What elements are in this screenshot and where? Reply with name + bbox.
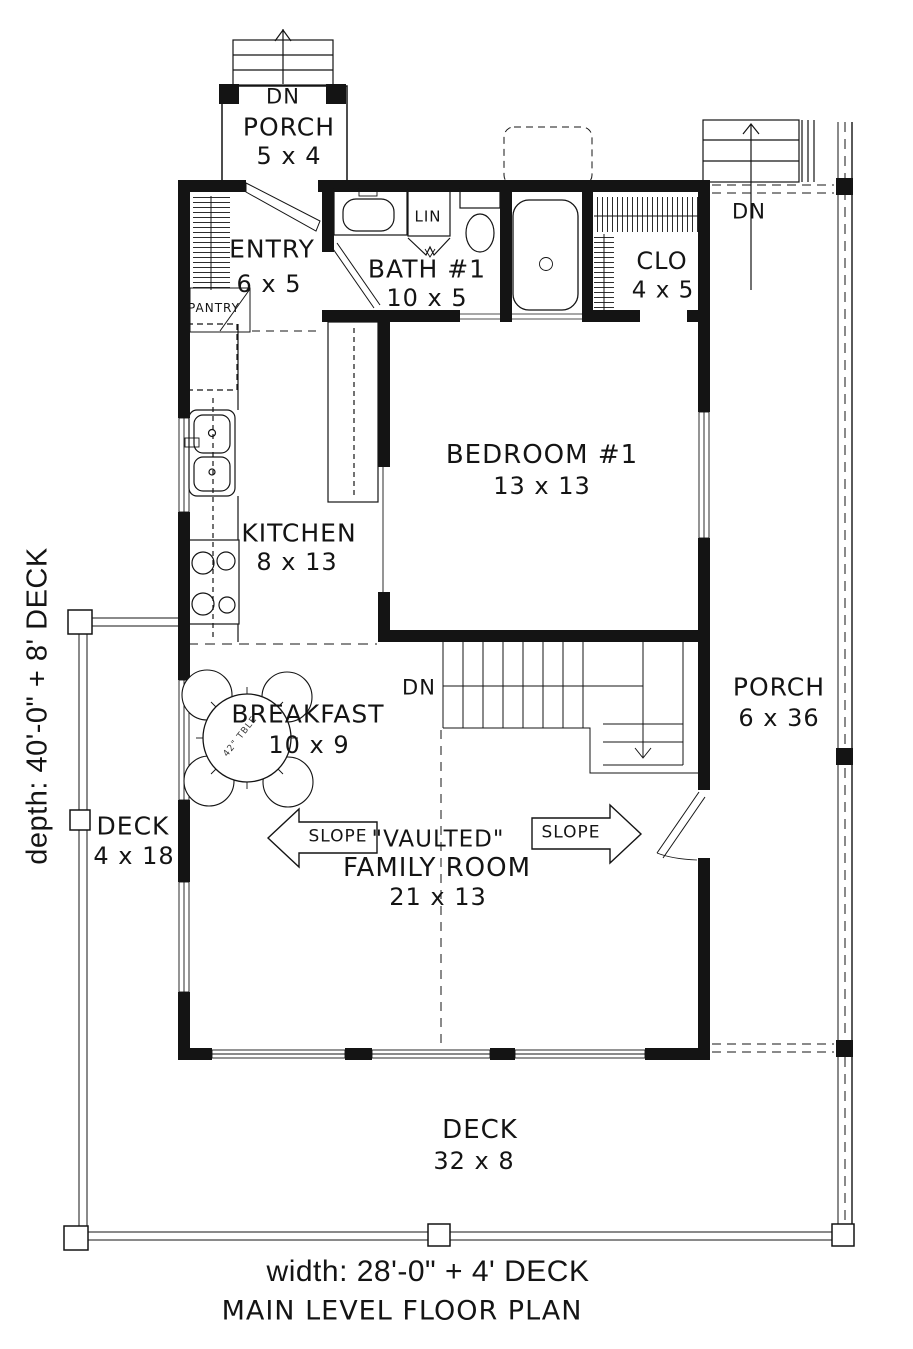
- deck-bottom-name: DECK: [442, 1117, 518, 1143]
- closet-name: CLO: [636, 249, 687, 273]
- entry-name: ENTRY: [229, 237, 315, 262]
- pantry-name: PANTRY: [188, 302, 240, 314]
- plan-title: MAIN LEVEL FLOOR PLAN: [222, 1298, 583, 1325]
- depth-dimension-note: depth: 40'-0" + 8' DECK: [24, 547, 53, 864]
- kitchen-fixtures: [185, 322, 378, 642]
- family-room-qualifier: "VAULTED": [372, 829, 505, 852]
- floor-plan-page: DN PORCH 5 x 4 ENTRY 6 x 5 PANTRY BATH #…: [0, 0, 913, 1349]
- bedroom-name: BEDROOM #1: [446, 442, 638, 468]
- porch-side-dims: 6 x 36: [738, 706, 819, 730]
- porch-side-name: PORCH: [733, 675, 825, 700]
- dn-stairs-label: DN: [402, 678, 436, 699]
- bedroom-dims: 13 x 13: [493, 474, 591, 498]
- kitchen-sink: [185, 410, 235, 496]
- dn-top-porch-label: DN: [266, 87, 300, 108]
- dn-side-porch-label: DN: [732, 202, 766, 223]
- entry-dims: 6 x 5: [237, 272, 302, 296]
- deck-side-name: DECK: [97, 814, 170, 839]
- kitchen-name: KITCHEN: [241, 521, 356, 546]
- slope-left-label: SLOPE: [308, 829, 367, 846]
- family-room-dims: 21 x 13: [389, 885, 487, 909]
- deck-bottom-dims: 32 x 8: [433, 1149, 514, 1173]
- toilet: [460, 189, 500, 252]
- front-door: [246, 183, 320, 231]
- width-dimension-note: width: 28'-0" + 4' DECK: [267, 1257, 590, 1287]
- bath-name: BATH #1: [368, 257, 486, 282]
- porch-top-dims: 5 x 4: [257, 144, 322, 168]
- closet-dims: 4 x 5: [632, 280, 695, 303]
- breakfast-dims: 10 x 9: [268, 733, 349, 757]
- slope-right-label: SLOPE: [541, 825, 600, 842]
- porch-top-stairs: [233, 29, 333, 85]
- bath-dims: 10 x 5: [386, 286, 467, 310]
- overhead-dashed-outline: [504, 127, 592, 185]
- walls: [178, 180, 710, 1060]
- porch-top-name: PORCH: [243, 115, 335, 140]
- kitchen-peninsula: [328, 322, 378, 502]
- deck-side-dims: 4 x 18: [93, 844, 174, 868]
- family-room-name: FAMILY ROOM: [343, 855, 531, 881]
- linen-name: LIN: [414, 210, 441, 225]
- kitchen-dims: 8 x 13: [256, 550, 337, 574]
- vanity-sink: [334, 187, 407, 235]
- porch-door: [657, 792, 705, 860]
- stairs-interior: [443, 642, 698, 773]
- bathtub: [513, 200, 578, 310]
- refrigerator: [187, 324, 237, 390]
